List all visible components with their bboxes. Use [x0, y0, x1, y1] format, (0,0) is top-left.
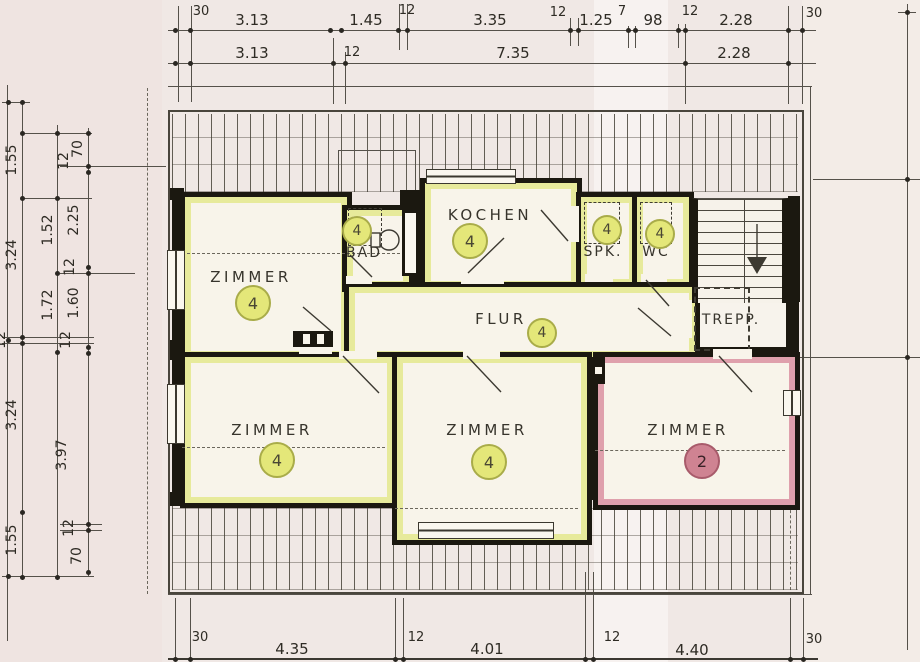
dim-top1-7: 7: [618, 4, 626, 19]
room-label-zimmer-bottom-left: ZIMMER: [231, 421, 312, 439]
room-badge: 4: [259, 442, 295, 478]
room-label-zimmer-top-left: ZIMMER: [210, 268, 291, 286]
radiator-icon: [293, 331, 333, 347]
dim-ext: [191, 6, 192, 102]
dim-top1-4: 3.35: [473, 11, 506, 29]
window: [167, 250, 185, 310]
door-gap: [346, 276, 372, 284]
dim-left-outer-1: 3.24: [4, 239, 20, 270]
dim-line-left-outer: [22, 100, 23, 580]
dim-left-outer-2: 12: [0, 331, 9, 349]
door-gap: [565, 206, 579, 242]
eaves-line-bottom: [168, 594, 812, 595]
dim-left-mid-0: 1.52: [40, 214, 56, 245]
dim-top1-2: 1.45: [349, 11, 382, 29]
dim-top1-3: 12: [399, 3, 416, 18]
window: [426, 169, 516, 184]
room-kochen: [420, 178, 582, 292]
room-label-flur: FLUR: [475, 310, 527, 328]
badge-number: 4: [272, 451, 282, 470]
room-label-bad: BAD: [346, 245, 382, 261]
dim-left-outer-4: 1.55: [4, 524, 20, 555]
badge-number: 4: [353, 223, 362, 239]
radiator-icon: [592, 357, 605, 384]
room-badge: 4: [452, 223, 488, 259]
dim-ext: [790, 598, 791, 659]
dim-ext: [788, 6, 789, 104]
dim-ext: [803, 598, 804, 659]
dim-top2-1: 12: [344, 45, 361, 60]
badge-number: 4: [656, 226, 665, 242]
dim-line-top-row2: [168, 63, 816, 64]
badge-number: 4: [248, 294, 258, 313]
room-badge: 4: [645, 219, 675, 249]
dim-left-inner-6: 12: [61, 519, 77, 537]
dim-bottom-6: 30: [806, 632, 823, 647]
room-badge: 4: [471, 444, 507, 480]
door-gap: [585, 274, 613, 282]
dim-left-inner-7: 70: [69, 547, 85, 565]
dim-left-inner-3: 12: [62, 258, 78, 276]
dim-left-inner-0: 70: [70, 140, 86, 158]
room-badge: 4: [342, 216, 372, 246]
dim-left-inner-5: 12: [58, 331, 74, 349]
dim-ext: [175, 598, 176, 659]
window: [783, 390, 801, 416]
eaves-line-top: [168, 86, 812, 87]
dim-top1-8: 98: [643, 11, 662, 29]
door-gap: [713, 349, 752, 359]
dim-ext: [403, 598, 404, 659]
badge-number: 4: [484, 453, 494, 472]
badge-number: 4: [603, 222, 612, 238]
eaves-line-right: [810, 86, 811, 594]
door-gap: [299, 346, 332, 354]
duct-shaft: [402, 210, 419, 276]
dim-ext: [802, 6, 803, 104]
room-badge: 4: [592, 215, 622, 245]
dim-bottom-5: 4.40: [675, 641, 708, 659]
dim-left-outer-3: 3.24: [4, 399, 20, 430]
dim-top1-9: 12: [682, 4, 699, 19]
window: [167, 384, 185, 444]
floor-plan-scan: { "plan": { "type": "attic floor plan", …: [0, 0, 920, 662]
paper-right-margin: [802, 0, 920, 662]
dim-left-mid-2: 3.97: [54, 439, 70, 470]
dim-bottom-2: 12: [408, 630, 425, 645]
dim-line-right: [907, 4, 908, 650]
dim-left-inner-1: 12: [56, 152, 72, 170]
door-gap: [684, 300, 692, 338]
room-badge: 2: [684, 443, 720, 479]
slope-line: [395, 508, 578, 509]
room-label-zimmer-bottom-middle: ZIMMER: [446, 421, 527, 439]
dim-top1-5: 12: [550, 5, 567, 20]
room-label-spk: SPK.: [584, 244, 623, 260]
badge-number: 4: [538, 325, 547, 341]
dim-bottom-0: 30: [192, 630, 209, 645]
dim-ext: [333, 38, 334, 104]
dim-top1-6: 1.25: [579, 11, 612, 29]
dim-top2-3: 2.28: [717, 44, 750, 62]
dim-top1-10: 2.28: [719, 11, 752, 29]
dim-top2-2: 7.35: [496, 44, 529, 62]
dim-left-inner-4: 1.60: [66, 287, 82, 318]
room-label-zimmer-bottom-right: ZIMMER: [647, 421, 728, 439]
door-gap: [641, 274, 667, 282]
dim-left-mid-1: 1.72: [40, 289, 56, 320]
badge-number: 2: [697, 452, 707, 471]
door-gap: [339, 351, 377, 359]
dim-bottom-4: 12: [604, 630, 621, 645]
dim-top2-0: 3.13: [235, 44, 268, 62]
dim-ext: [190, 598, 191, 659]
dim-line-bottom: [168, 658, 818, 660]
door-gap: [461, 276, 504, 284]
window: [418, 522, 554, 539]
dim-bottom-3: 4.01: [470, 640, 503, 658]
dim-top1-1: 3.13: [235, 11, 268, 29]
dim-ext: [178, 6, 179, 102]
room-badge: 4: [527, 318, 557, 348]
dim-ext: [395, 598, 396, 659]
room-badge: 4: [235, 285, 271, 321]
dim-line-top-row1: [168, 30, 816, 31]
dim-top1-0: 30: [193, 4, 210, 19]
badge-number: 4: [465, 232, 475, 251]
dim-bottom-1: 4.35: [275, 640, 308, 658]
dim-left-outer-0: 1.55: [4, 144, 20, 175]
roof-edge-dash-line: [147, 88, 148, 594]
dim-left-inner-2: 2.25: [66, 204, 82, 235]
room-label-kochen: KOCHEN: [448, 206, 532, 224]
dim-top1-11: 30: [806, 6, 823, 21]
door-gap: [463, 351, 500, 359]
room-label-trepp: TREPP.: [702, 312, 760, 328]
